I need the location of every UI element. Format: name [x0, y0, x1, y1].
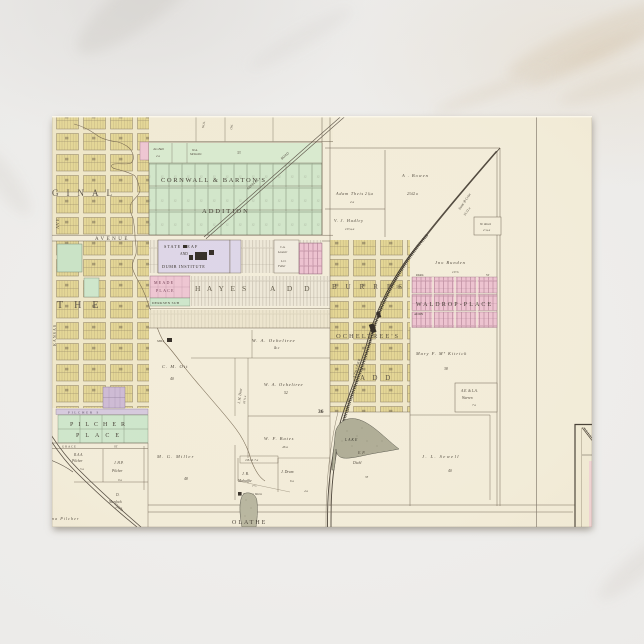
svg-text:DERKSEN SUB: DERKSEN SUB	[152, 301, 180, 305]
svg-text:J. B.: J. B.	[242, 472, 249, 476]
svg-text:na Pilcher: na Pilcher	[52, 516, 80, 521]
svg-text:PLACE: PLACE	[156, 288, 175, 293]
svg-text:2 a: 2 a	[156, 154, 160, 158]
svg-text:THE: THE	[57, 300, 109, 311]
svg-text:23.62 a: 23.62 a	[407, 192, 418, 196]
svg-text:A D D: A D D	[360, 374, 393, 382]
svg-text:B U R R I S: B U R R I S	[332, 283, 406, 291]
svg-text:McKettle: McKettle	[189, 152, 202, 156]
svg-text:PILCHER S: PILCHER S	[68, 411, 100, 415]
svg-text:MILL: MILL	[156, 339, 165, 343]
svg-text:A . Bowen: A . Bowen	[401, 173, 429, 178]
svg-text:J. Drum: J. Drum	[281, 470, 294, 474]
svg-text:ST: ST	[486, 273, 490, 277]
svg-text:Lounsir: Lounsir	[277, 250, 288, 254]
svg-text:WALDROP-PLACE: WALDROP-PLACE	[416, 302, 493, 308]
svg-text:AVENUE: AVENUE	[95, 237, 130, 242]
svg-text:Dichl: Dichl	[352, 461, 361, 465]
svg-text:ST: ST	[114, 445, 118, 449]
svg-text:Mahaffie: Mahaffie	[237, 479, 252, 483]
svg-text:7 ½: 7 ½	[252, 484, 257, 488]
svg-text:W. Rock: W. Rock	[480, 222, 491, 226]
svg-text:40: 40	[170, 377, 174, 381]
svg-text:D.: D.	[115, 493, 120, 497]
svg-text:J. H.P.: J. H.P.	[114, 461, 124, 465]
svg-text:L.O.: L.O.	[280, 259, 287, 263]
svg-text:C. M. Ott: C. M. Ott	[162, 364, 188, 369]
svg-text:40: 40	[448, 469, 452, 473]
svg-text:& c: & c	[274, 346, 280, 350]
svg-text:ADDITION: ADDITION	[202, 208, 250, 215]
svg-text:J. L. Sewell: J. L. Sewell	[422, 454, 460, 459]
svg-text:9 a: 9 a	[118, 478, 122, 482]
svg-text:C.A.: C.A.	[280, 245, 286, 249]
svg-text:A.E. & L.A.: A.E. & L.A.	[460, 389, 478, 393]
svg-text:Jas Ball: Jas Ball	[153, 147, 164, 151]
svg-text:PLACE: PLACE	[76, 433, 125, 439]
svg-text:46 a: 46 a	[282, 445, 288, 449]
svg-text:10 ⅞: 10 ⅞	[452, 270, 459, 274]
svg-text:5 a: 5 a	[80, 467, 84, 471]
svg-text:Jno Bunden: Jno Bunden	[435, 260, 466, 265]
svg-text:KANSAS: KANSAS	[52, 324, 57, 346]
svg-text:W. A. Ocheltree: W. A. Ocheltree	[264, 382, 303, 387]
svg-text:2 ¼ a: 2 ¼ a	[483, 228, 491, 232]
svg-text:6 a: 6 a	[290, 479, 294, 483]
svg-text:2 ¾ a: 2 ¾ a	[365, 192, 373, 196]
svg-text:48: 48	[184, 477, 188, 481]
svg-text:PARK: PARK	[416, 273, 425, 277]
svg-text:PILCHER: PILCHER	[70, 422, 130, 428]
svg-text:Warren: Warren	[462, 396, 473, 400]
svg-text:J.B.M. 7 a: J.B.M. 7 a	[245, 458, 259, 462]
svg-text:33: 33	[365, 475, 369, 479]
svg-text:GRACE: GRACE	[62, 445, 77, 449]
svg-text:52: 52	[284, 391, 288, 395]
svg-text:DUMB INSTITUTE: DUMB INSTITUTE	[162, 264, 205, 269]
svg-text:10 ¼ a: 10 ¼ a	[345, 227, 355, 231]
svg-text:V. J. Hadley: V. J. Hadley	[334, 218, 364, 223]
svg-text:AND: AND	[180, 252, 188, 256]
svg-text:38: 38	[444, 367, 448, 371]
svg-text:Adam Theis: Adam Theis	[335, 191, 364, 196]
svg-text:Pilcher: Pilcher	[111, 469, 123, 473]
svg-text:36: 36	[318, 409, 324, 415]
svg-text:W. A. Ocheltree: W. A. Ocheltree	[252, 338, 296, 343]
svg-text:Pilcher: Pilcher	[71, 459, 83, 463]
svg-text:LAKE: LAKE	[344, 438, 358, 442]
svg-text:M. G. Miller: M. G. Miller	[156, 454, 195, 459]
svg-text:Mary F. Mº Kitrick: Mary F. Mº Kitrick	[415, 351, 467, 356]
svg-text:33: 33	[237, 151, 241, 155]
svg-text:AVE: AVE	[55, 217, 60, 229]
svg-text:OLATHE: OLATHE	[232, 520, 267, 526]
svg-text:E. P.: E. P.	[357, 451, 365, 455]
svg-text:R.A.A.: R.A.A.	[73, 453, 83, 457]
svg-text:A D D: A D D	[270, 284, 315, 293]
svg-text:STATE DEAF: STATE DEAF	[164, 244, 198, 249]
svg-text:ADDN: ADDN	[414, 312, 424, 316]
svg-text:4 a: 4 a	[304, 489, 308, 493]
svg-text:H A Y E S: H A Y E S	[195, 284, 249, 293]
svg-text:GINAL: GINAL	[52, 188, 120, 198]
svg-text:Fuller: Fuller	[277, 264, 286, 268]
svg-text:W. F. Bates: W. F. Bates	[264, 436, 295, 441]
svg-text:MEADE: MEADE	[154, 280, 174, 285]
svg-text:7 a: 7 a	[472, 403, 476, 407]
svg-text:2 a: 2 a	[350, 200, 355, 204]
